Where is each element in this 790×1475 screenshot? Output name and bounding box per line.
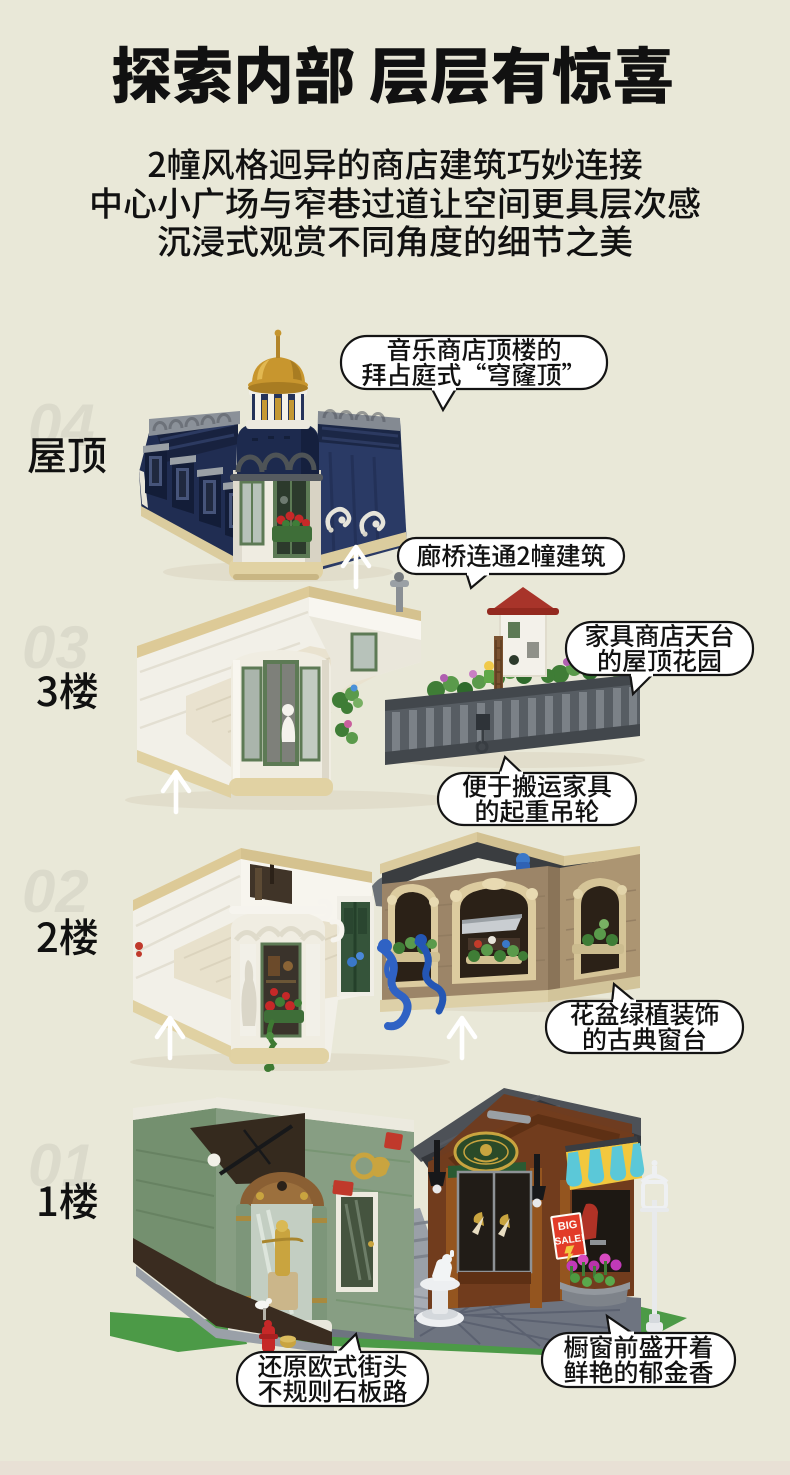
svg-text:02: 02	[22, 858, 89, 925]
svg-text:03: 03	[22, 614, 89, 681]
svg-text:04: 04	[28, 392, 95, 459]
